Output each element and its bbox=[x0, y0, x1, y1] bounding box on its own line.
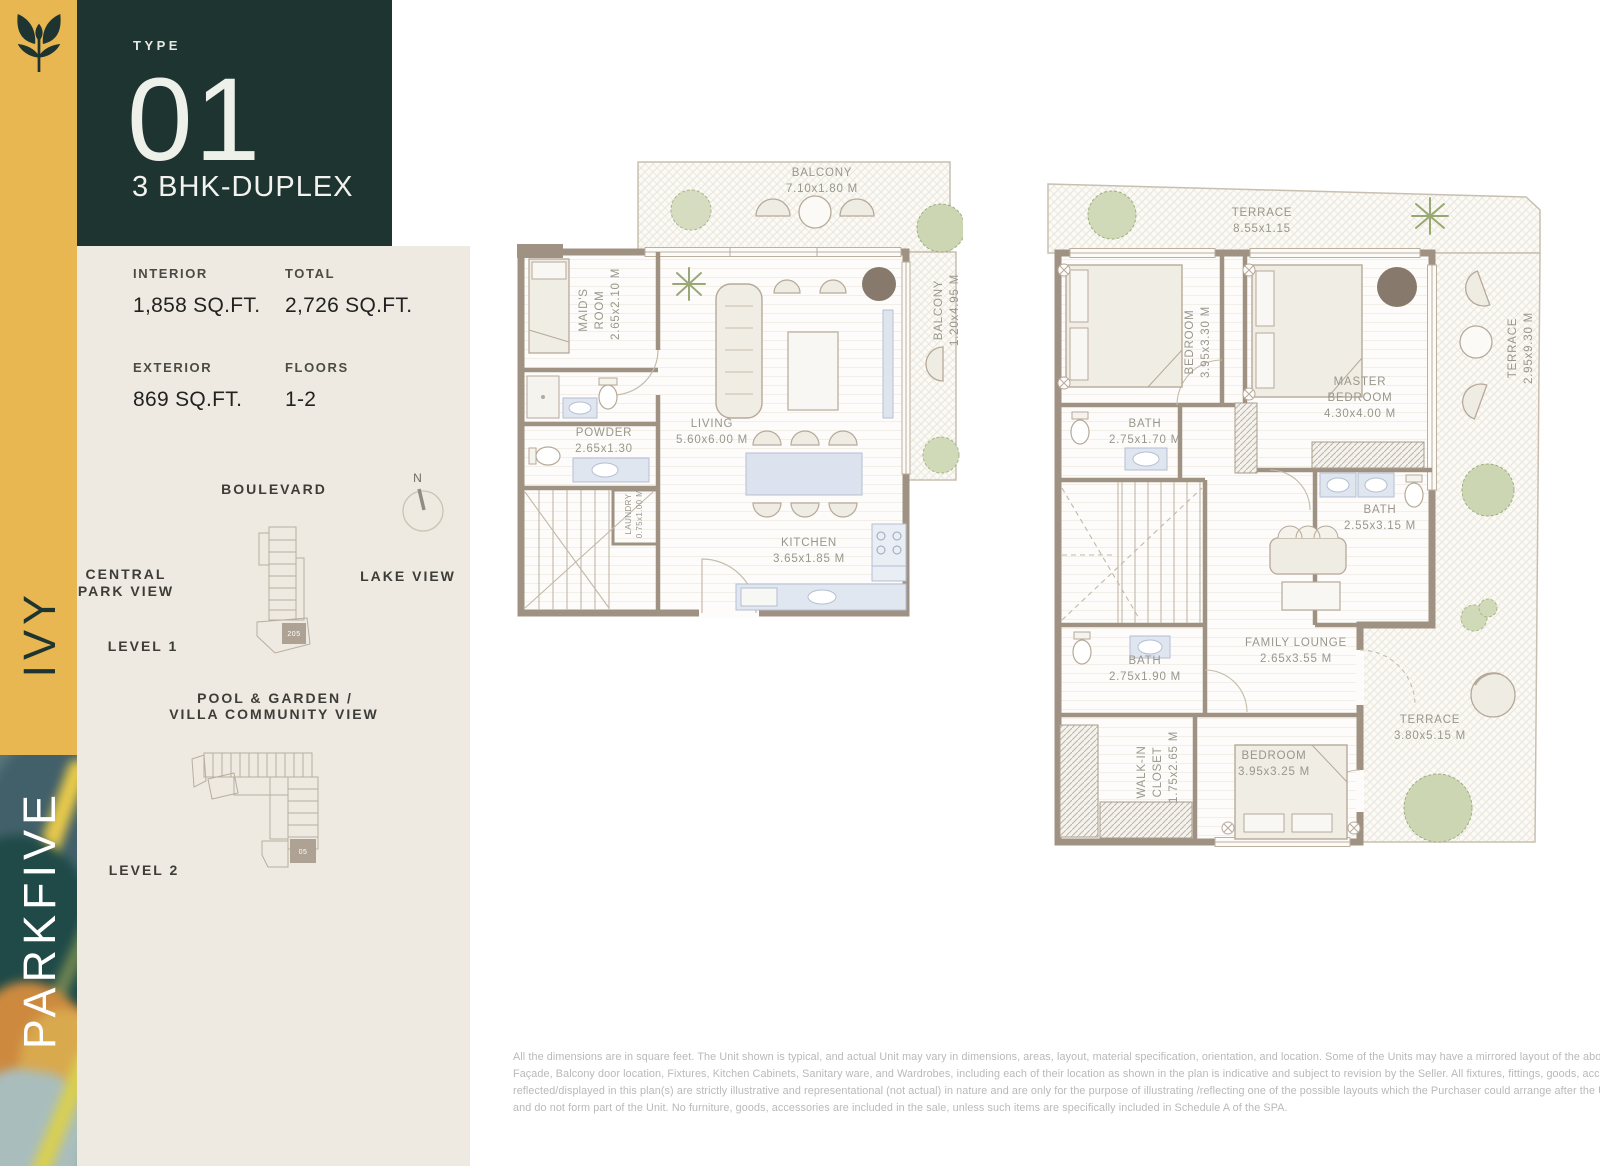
room-label-bath2: BATH 2.55x3.15 M bbox=[1344, 502, 1416, 534]
floorplan-level1 bbox=[505, 152, 963, 632]
stat-total-value: 2,726 SQ.FT. bbox=[285, 294, 412, 318]
brand-strip-yellow: IVY bbox=[0, 0, 77, 755]
coffee-table bbox=[788, 332, 838, 410]
disclaimer-text: All the dimensions are in square feet. T… bbox=[513, 1049, 1600, 1117]
stat-interior-value: 1,858 SQ.FT. bbox=[133, 294, 260, 318]
compass-north-label: N bbox=[413, 471, 423, 485]
site-level2-label: LEVEL 2 bbox=[109, 862, 180, 878]
site-keyplan-level2: 05 bbox=[190, 745, 340, 873]
room-label-balcony-right: BALCONY 1.20x4.95 M bbox=[931, 274, 963, 346]
brand-name-ivy: IVY bbox=[14, 590, 66, 678]
unit-type-box: TYPE 01 3 BHK-DUPLEX bbox=[77, 0, 392, 246]
stat-exterior-label: EXTERIOR bbox=[133, 360, 212, 375]
sofa bbox=[716, 284, 762, 418]
stat-interior-label: INTERIOR bbox=[133, 266, 208, 281]
disclaimer-line: All the dimensions are in square feet. T… bbox=[513, 1049, 1600, 1066]
room-label-walk-in-closet: WALK-IN CLOSET 1.75x2.65 M bbox=[1134, 741, 1182, 803]
side-table-dark bbox=[862, 267, 896, 301]
disclaimer-line: Façade, Balcony door location, Fixtures,… bbox=[513, 1066, 1600, 1083]
stat-total-label: TOTAL bbox=[285, 266, 335, 281]
site-unit-205-label: 205 bbox=[287, 631, 300, 638]
brand-strip: IVY PARKFIVE bbox=[0, 0, 77, 1166]
plant-living bbox=[673, 268, 705, 300]
site-pool-garden-line1: POOL & GARDEN / bbox=[197, 690, 353, 706]
room-label-bath3: BATH 2.75x1.90 M bbox=[1109, 653, 1181, 685]
brochure-page: IVY PARKFIVE TYPE 01 3 BHK-DUPLEX INTERI… bbox=[0, 0, 1600, 1166]
compass-icon: N bbox=[393, 465, 455, 537]
site-central-park-line1: CENTRAL bbox=[86, 566, 167, 582]
room-label-living: LIVING 5.60x6.00 M bbox=[676, 416, 748, 448]
room-label-laundry: LAUNDRY 0.75x1.00 M bbox=[623, 490, 645, 538]
site-keyplan-level1: 205 bbox=[255, 522, 317, 662]
room-label-terrace-right: TERRACE 2.95x9.30 M bbox=[1505, 312, 1537, 384]
site-pool-garden-line2: VILLA COMMUNITY VIEW bbox=[169, 706, 379, 722]
ivy-flower-logo-icon bbox=[10, 12, 68, 74]
family-lounge-furniture bbox=[1270, 526, 1346, 610]
site-unit-05-label: 05 bbox=[299, 849, 308, 856]
site-lake-view-label: LAKE VIEW bbox=[360, 568, 456, 584]
disclaimer-line: reflected/displayed in this plan(s) are … bbox=[513, 1083, 1600, 1100]
stat-floors-value: 1-2 bbox=[285, 388, 316, 412]
bed1 bbox=[1058, 264, 1182, 389]
type-label: TYPE bbox=[133, 38, 181, 53]
brand-artwork: PARKFIVE bbox=[0, 755, 77, 1166]
type-subtitle: 3 BHK-DUPLEX bbox=[132, 171, 354, 204]
room-label-balcony-top: BALCONY 7.10x1.80 M bbox=[786, 165, 858, 197]
master-side-table-dark bbox=[1377, 267, 1417, 307]
type-number: 01 bbox=[127, 52, 262, 188]
site-level1-label: LEVEL 1 bbox=[108, 638, 179, 654]
room-label-powder: POWDER 2.65x1.30 bbox=[575, 425, 633, 457]
dining-set bbox=[746, 431, 862, 517]
stat-floors-label: FLOORS bbox=[285, 360, 349, 375]
room-label-master-bedroom: MASTER BEDROOM 4.30x4.00 M bbox=[1313, 374, 1408, 422]
room-label-maids-room: MAID'S ROOM 2.65x2.10 M bbox=[576, 280, 624, 340]
stat-exterior-value: 869 SQ.FT. bbox=[133, 388, 242, 412]
room-label-bath1: BATH 2.75x1.70 M bbox=[1109, 416, 1181, 448]
disclaimer-line: and do not form part of the Unit. No fur… bbox=[513, 1100, 1600, 1117]
room-label-terrace-top: TERRACE 8.55x1.15 bbox=[1232, 205, 1293, 237]
site-boulevard-label: BOULEVARD bbox=[221, 481, 327, 497]
brand-name-parkfive: PARKFIVE bbox=[14, 790, 66, 1049]
room-label-bedroom2: BEDROOM 3.95x3.25 M bbox=[1238, 748, 1310, 780]
room-label-kitchen: KITCHEN 3.65x1.85 M bbox=[773, 535, 845, 567]
room-label-family-lounge: FAMILY LOUNGE 2.65x3.55 M bbox=[1245, 635, 1347, 667]
room-label-terrace-bottom: TERRACE 3.80x5.15 M bbox=[1394, 712, 1466, 744]
room-label-bedroom1: BEDROOM 3.95x3.30 M bbox=[1182, 306, 1214, 378]
site-central-park-line2: PARK VIEW bbox=[78, 583, 174, 599]
maids-bed bbox=[529, 259, 569, 353]
tv-console bbox=[883, 310, 893, 418]
